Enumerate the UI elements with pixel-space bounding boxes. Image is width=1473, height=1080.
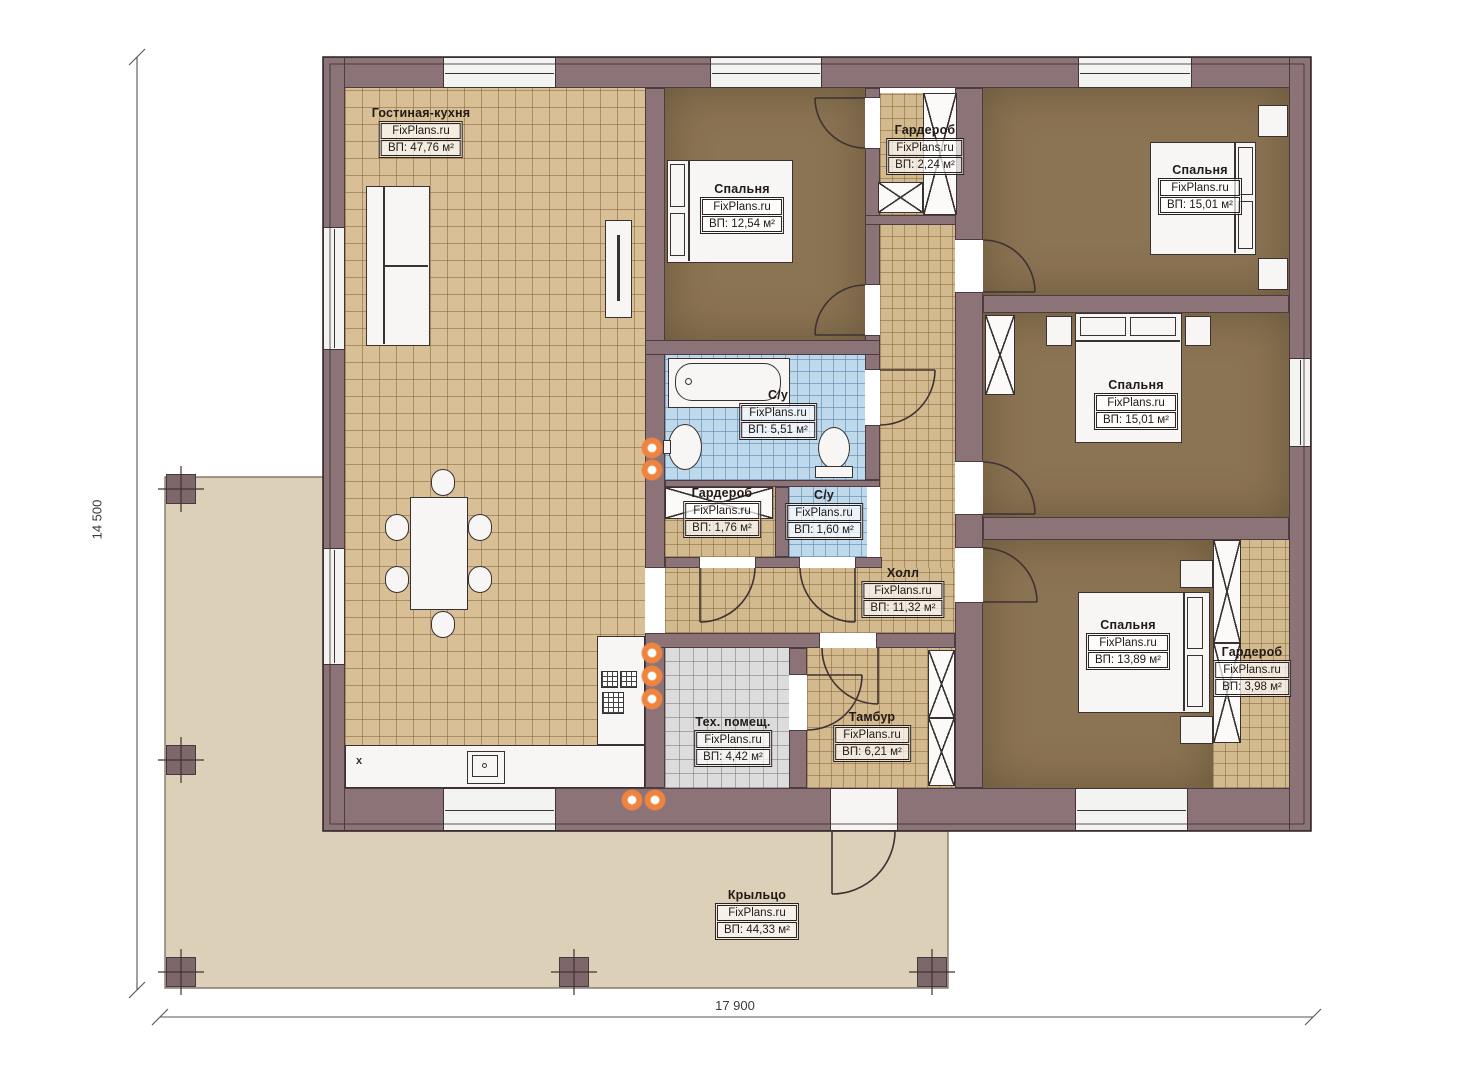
room-area: ВП: 12,54 м² — [702, 216, 782, 232]
room-name: Тех. помещ. — [695, 715, 770, 729]
room-label-wardrobe-br: Гардероб FixPlans.ru ВП: 3,98 м² — [1213, 645, 1291, 697]
wall-living-right-upper — [645, 88, 665, 568]
brand-watermark: FixPlans.ru — [1088, 635, 1168, 651]
dining-chair — [468, 514, 492, 541]
bed-head-line — [1183, 593, 1185, 711]
brand-watermark: FixPlans.ru — [835, 727, 909, 743]
room-area: ВП: 4,42 м² — [696, 749, 770, 765]
dining-chair — [385, 514, 409, 541]
room-name: Гардероб — [895, 123, 956, 137]
wall-tech-tambur-b — [789, 730, 807, 788]
porch-column — [166, 745, 196, 775]
brand-watermark: FixPlans.ru — [741, 405, 815, 421]
room-name: Холл — [887, 566, 919, 580]
dining-chair — [385, 566, 409, 593]
brand-watermark: FixPlans.ru — [685, 503, 759, 519]
bathroom-sink-tap — [663, 440, 671, 454]
room-area: ВП: 13,89 м² — [1088, 652, 1168, 668]
nightstand — [1180, 560, 1213, 588]
wardrobe-cabinet — [985, 315, 1015, 395]
wall-tech-tambur-a — [789, 648, 807, 675]
pillow — [670, 213, 685, 256]
pillow — [670, 164, 685, 207]
room-area: ВП: 1,60 м² — [787, 522, 861, 538]
bathroom-sink — [668, 424, 702, 470]
window-bottom-kitchen — [443, 788, 556, 831]
light-dot — [621, 789, 643, 811]
dining-chair — [468, 566, 492, 593]
wall-corridor-bedrooms-d — [955, 602, 983, 788]
brand-watermark: FixPlans.ru — [888, 140, 962, 156]
room-area: ВП: 47,76 м² — [381, 140, 461, 156]
wall-bed3-bed4 — [983, 517, 1289, 540]
bed-head-line — [688, 161, 690, 261]
room-area: ВП: 5,51 м² — [741, 422, 815, 438]
pillow — [1080, 317, 1126, 336]
tambur-closet — [928, 718, 955, 786]
room-area: ВП: 6,21 м² — [835, 744, 909, 760]
toilet-tank — [815, 466, 853, 478]
bed-head-line — [1076, 340, 1180, 342]
dining-table — [410, 497, 468, 610]
room-area: ВП: 3,98 м² — [1215, 679, 1289, 695]
sofa-seat-line — [383, 265, 428, 267]
brand-watermark: FixPlans.ru — [1160, 180, 1240, 196]
wall-corridor-bedrooms-c — [955, 514, 983, 548]
room-name: Спальня — [714, 182, 769, 196]
stove-burners — [620, 671, 637, 688]
room-label-tech-room: Тех. помещ. FixPlans.ru ВП: 4,42 м² — [694, 715, 772, 767]
light-dot — [641, 459, 663, 481]
wall-row2-hall-a — [665, 557, 700, 568]
wall-hall-tech-tambur-b — [876, 633, 955, 648]
porch-column — [559, 957, 589, 987]
brand-watermark: FixPlans.ru — [1215, 662, 1289, 678]
stove-burners — [602, 692, 624, 714]
room-label-tambur: Тамбур FixPlans.ru ВП: 6,21 м² — [833, 710, 911, 762]
nightstand — [1258, 105, 1288, 137]
window-left-living-lower — [323, 548, 345, 665]
wall-hall-tech-tambur-a — [645, 633, 820, 648]
floor-plan: x — [0, 0, 1473, 1080]
room-name: С/у — [814, 488, 834, 502]
window-left-living-upper — [323, 227, 345, 350]
tambur-closet — [928, 650, 955, 718]
pillow — [1187, 655, 1203, 707]
room-name: Спальня — [1172, 163, 1227, 177]
tv-screen-line — [617, 235, 620, 301]
window-top-bedroom1 — [710, 57, 822, 88]
dimension-height: 14 500 — [90, 490, 105, 550]
window-right-bedroom3 — [1289, 358, 1311, 447]
tv-console — [605, 220, 632, 318]
light-dot — [644, 789, 666, 811]
brand-watermark: FixPlans.ru — [863, 583, 942, 599]
dining-chair — [431, 469, 455, 496]
room-name: Гардероб — [1222, 645, 1283, 659]
room-name: Спальня — [1100, 618, 1155, 632]
room-area: ВП: 15,01 м² — [1160, 197, 1240, 213]
window-bottom-bedroom4 — [1075, 788, 1188, 831]
wall-bed1-bath1 — [645, 340, 880, 355]
room-label-wardrobe-mid: Гардероб FixPlans.ru ВП: 1,76 м² — [683, 486, 761, 538]
window-top-bedroom2 — [1078, 57, 1192, 88]
room-area: ВП: 44,33 м² — [717, 922, 797, 938]
dining-chair — [431, 611, 455, 638]
brand-watermark: FixPlans.ru — [1096, 395, 1176, 411]
room-name: Спальня — [1108, 378, 1163, 392]
porch-column — [166, 474, 196, 504]
kitchen-counter-right — [597, 636, 645, 745]
room-label-bathroom-1: С/у FixPlans.ru ВП: 5,51 м² — [739, 388, 817, 440]
toilet-bowl — [818, 427, 850, 469]
brand-watermark: FixPlans.ru — [381, 123, 461, 139]
room-label-wardrobe-top: Гардероб FixPlans.ru ВП: 2,24 м² — [886, 123, 964, 175]
light-dot — [641, 437, 663, 459]
stove-burners — [601, 671, 618, 688]
room-label-bedroom-3: Спальня FixPlans.ru ВП: 15,01 м² — [1094, 378, 1178, 430]
wardrobe-cabinet — [1213, 540, 1241, 643]
wall-bed2-bed3 — [983, 295, 1289, 313]
wall-exterior-left — [323, 57, 345, 831]
room-label-bedroom-4: Спальня FixPlans.ru ВП: 13,89 м² — [1086, 618, 1170, 670]
room-label-living-kitchen: Гостиная-кухня FixPlans.ru ВП: 47,76 м² — [372, 106, 471, 158]
room-label-hall: Холл FixPlans.ru ВП: 11,32 м² — [861, 566, 944, 618]
kitchen-sink-drain — [482, 763, 487, 768]
kitchen-sink — [467, 751, 505, 784]
room-name: Гардероб — [692, 486, 753, 500]
wall-bed1-corridor-a — [865, 88, 880, 98]
room-name: Гостиная-кухня — [372, 106, 471, 120]
room-name: Крыльцо — [728, 888, 786, 902]
wall-wardtop-bottom — [865, 215, 957, 225]
wall-row2-hall-b — [755, 557, 800, 568]
wardrobe-cabinet — [878, 182, 923, 213]
brand-watermark: FixPlans.ru — [702, 199, 782, 215]
light-dot — [641, 642, 663, 664]
bathtub-drain — [685, 378, 692, 385]
porch-column — [917, 957, 947, 987]
window-top-living — [443, 57, 556, 88]
nightstand — [1185, 316, 1211, 346]
sofa — [366, 186, 430, 346]
brand-watermark: FixPlans.ru — [696, 732, 770, 748]
kitchen-x-mark: x — [356, 755, 362, 767]
pillow — [1130, 317, 1176, 336]
light-dot — [641, 665, 663, 687]
room-area: ВП: 15,01 м² — [1096, 412, 1176, 428]
room-area: ВП: 1,76 м² — [685, 520, 759, 536]
room-area: ВП: 2,24 м² — [888, 157, 962, 173]
dimension-width: 17 900 — [700, 998, 770, 1013]
nightstand — [1258, 258, 1288, 290]
room-area: ВП: 11,32 м² — [863, 600, 942, 616]
brand-watermark: FixPlans.ru — [717, 905, 797, 921]
room-label-bathroom-2: С/у FixPlans.ru ВП: 1,60 м² — [785, 488, 863, 540]
brand-watermark: FixPlans.ru — [787, 505, 861, 521]
wall-bath1-corridor — [865, 425, 880, 480]
pillow — [1187, 597, 1203, 649]
room-label-bedroom-1: Спальня FixPlans.ru ВП: 12,54 м² — [700, 182, 784, 234]
room-name: Тамбур — [849, 710, 896, 724]
light-dot — [641, 688, 663, 710]
wall-corridor-bedrooms-b — [955, 292, 983, 462]
nightstand — [1046, 316, 1072, 346]
room-label-porch: Крыльцо FixPlans.ru ВП: 44,33 м² — [715, 888, 799, 940]
room-name: С/у — [768, 388, 788, 402]
room-label-bedroom-2: Спальня FixPlans.ru ВП: 15,01 м² — [1158, 163, 1242, 215]
nightstand — [1180, 716, 1213, 744]
entrance-door-opening — [830, 788, 898, 831]
porch-column — [166, 957, 196, 987]
